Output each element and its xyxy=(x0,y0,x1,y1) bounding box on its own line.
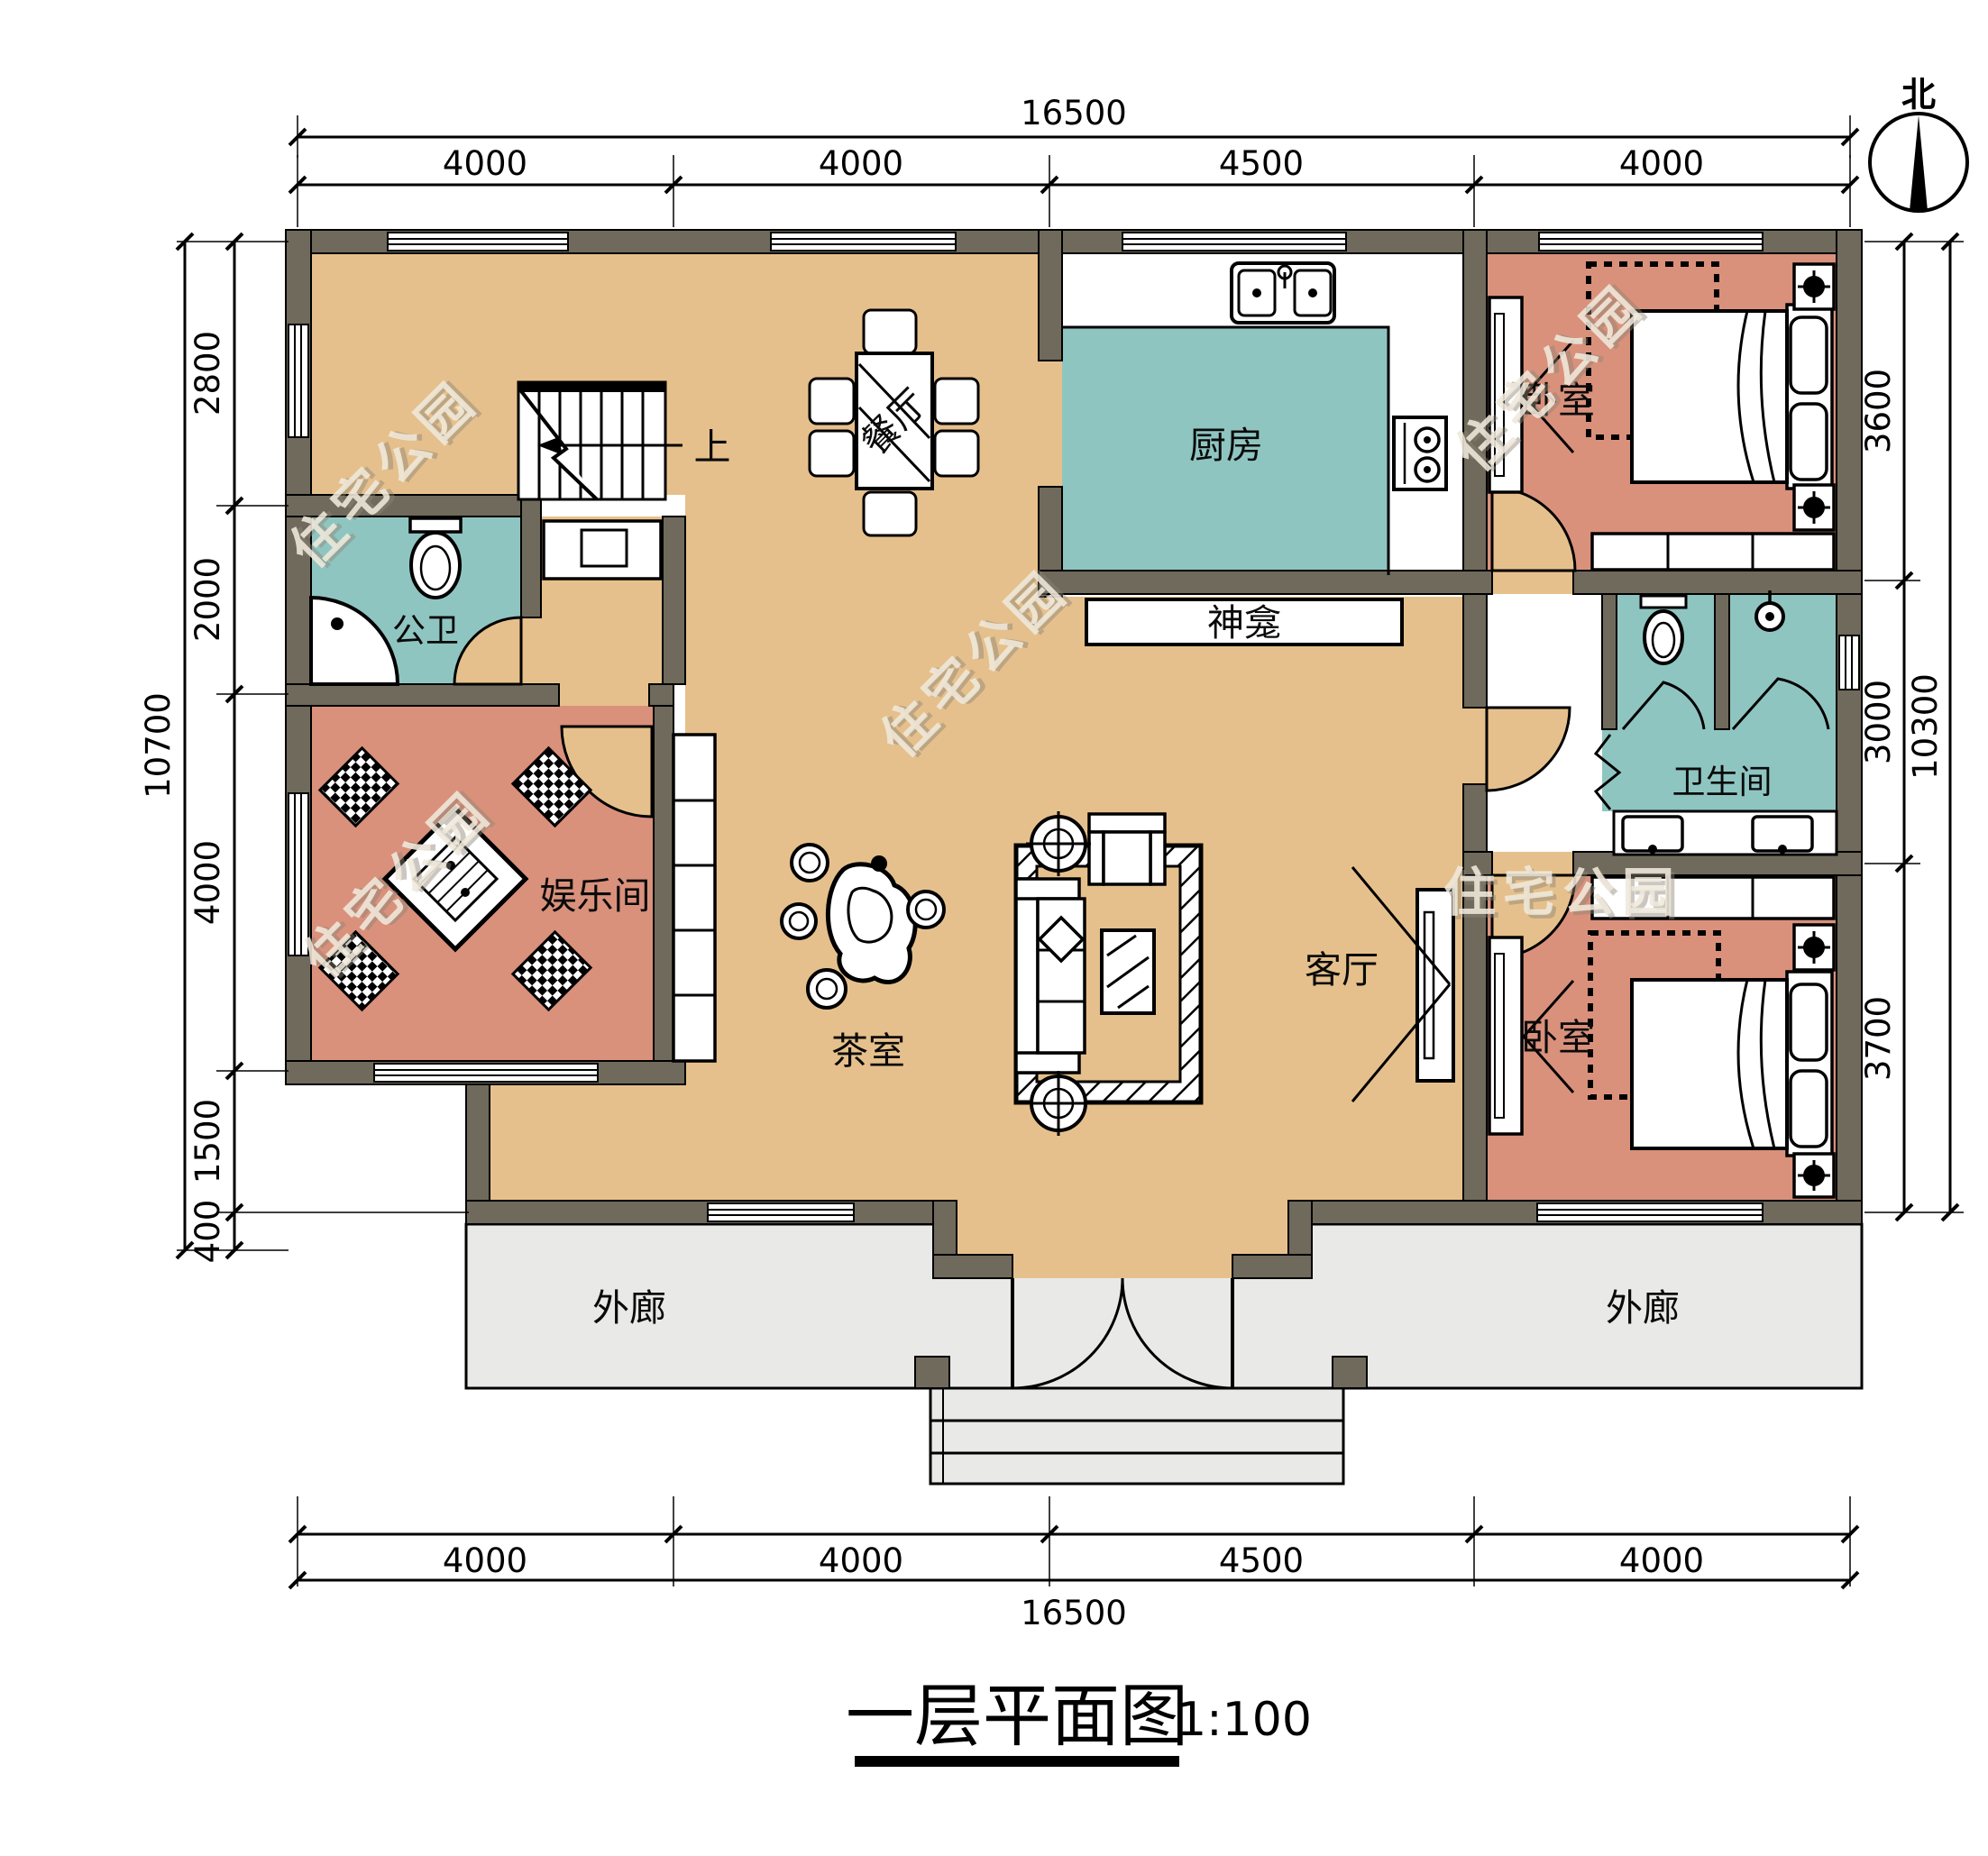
title-block: 一层平面图 1:100 xyxy=(846,1679,1312,1767)
tea-room-label: 茶室 xyxy=(831,1030,905,1072)
floor-plan-drawing: 上 餐厅 厨房 xyxy=(0,0,1988,1856)
dim-bottom-seg-2: 4000 xyxy=(819,1541,903,1580)
sink-counter-icon xyxy=(1614,811,1837,855)
dim-left-total: 10700 xyxy=(139,692,178,799)
dim-left-seg-3: 4000 xyxy=(188,840,227,925)
kitchen-sink-icon xyxy=(1232,263,1334,323)
dim-right-seg-2: 3000 xyxy=(1859,680,1898,764)
sofa-set-icon xyxy=(1016,811,1201,1136)
watermark: 住宅公园 住宅公园 xyxy=(1443,864,1685,926)
title-scale: 1:100 xyxy=(1177,1693,1312,1747)
bed-icon xyxy=(1632,972,1832,1156)
shrine-label: 神龛 xyxy=(1207,602,1281,644)
stove-icon xyxy=(1394,417,1446,489)
nightstand-icon xyxy=(1794,264,1834,309)
veranda-left-label: 外廊 xyxy=(592,1287,666,1329)
coffee-table-icon xyxy=(1102,930,1154,1013)
svg-text:住宅公园: 住宅公园 xyxy=(1443,864,1681,922)
veranda-column xyxy=(915,1357,949,1388)
toilet-icon xyxy=(410,518,461,598)
compass-north-label: 北 xyxy=(1901,77,1936,114)
title-underline xyxy=(855,1756,1179,1767)
dim-left-seg-5: 400 xyxy=(188,1200,227,1264)
nightstand-icon xyxy=(1794,485,1834,530)
armchair-icon xyxy=(1089,814,1165,884)
tea-room-floor-south xyxy=(490,1084,1463,1201)
dim-top-seg-1: 4000 xyxy=(443,144,527,183)
window xyxy=(374,1064,598,1082)
window xyxy=(388,233,568,251)
entertainment-label: 娱乐间 xyxy=(540,875,651,917)
dim-bottom-seg-4: 4000 xyxy=(1619,1541,1704,1580)
toilet-icon xyxy=(1641,596,1686,663)
entry-steps xyxy=(930,1388,1343,1484)
page-title: 一层平面图 xyxy=(846,1679,1188,1755)
window xyxy=(1537,1203,1763,1221)
dresser-icon xyxy=(1592,534,1834,570)
bath-right-label: 卫生间 xyxy=(1672,764,1773,801)
window xyxy=(289,793,308,955)
tea-cabinet-strip xyxy=(673,735,715,1061)
floor-plan-page: 上 餐厅 厨房 xyxy=(0,0,1988,1856)
dim-top-total: 16500 xyxy=(1021,94,1127,133)
dim-top-seg-4: 4000 xyxy=(1619,144,1704,183)
dim-right-seg-3: 3700 xyxy=(1859,996,1898,1081)
window xyxy=(1839,635,1859,690)
dimension-top: 16500 4000 4000 4500 4000 xyxy=(289,94,1858,227)
dim-top-seg-3: 4500 xyxy=(1219,144,1304,183)
bath-left-label: 公卫 xyxy=(392,613,459,650)
dim-bottom-seg-1: 4000 xyxy=(443,1541,527,1580)
tea-room-floor xyxy=(685,495,1039,1084)
dim-bottom-total: 16500 xyxy=(1021,1594,1127,1632)
window xyxy=(1122,233,1346,251)
dim-left-seg-2: 2000 xyxy=(188,557,227,642)
living-label: 客厅 xyxy=(1305,949,1379,991)
kitchen-label: 厨房 xyxy=(1189,425,1263,466)
dimension-bottom: 4000 4000 4500 4000 16500 xyxy=(289,1496,1858,1632)
nightstand-icon xyxy=(1794,925,1834,970)
compass-icon: 北 xyxy=(1870,77,1967,211)
understair-cabinet xyxy=(544,521,661,579)
veranda-right-label: 外廊 xyxy=(1606,1287,1680,1329)
dim-right-seg-1: 3600 xyxy=(1859,369,1898,453)
window xyxy=(771,233,956,251)
veranda-column xyxy=(1333,1357,1367,1388)
window xyxy=(1539,233,1763,251)
window xyxy=(708,1203,854,1221)
dim-bottom-seg-3: 4500 xyxy=(1219,1541,1304,1580)
dimension-right: 3600 3000 3700 10300 xyxy=(1859,233,1964,1221)
dim-left-seg-4: 1500 xyxy=(188,1099,227,1184)
bed-icon xyxy=(1632,305,1832,489)
door-bath-right-corridor xyxy=(1487,708,1570,791)
sofa-icon xyxy=(1016,879,1085,1073)
dim-top-seg-2: 4000 xyxy=(819,144,903,183)
dim-right-total: 10300 xyxy=(1906,673,1945,780)
stairs-up-label: 上 xyxy=(694,426,731,468)
nightstand-icon xyxy=(1794,1154,1834,1197)
bedroom-bottom-label: 卧室 xyxy=(1521,1017,1595,1058)
dim-left-seg-1: 2800 xyxy=(188,331,227,416)
window xyxy=(289,325,308,437)
